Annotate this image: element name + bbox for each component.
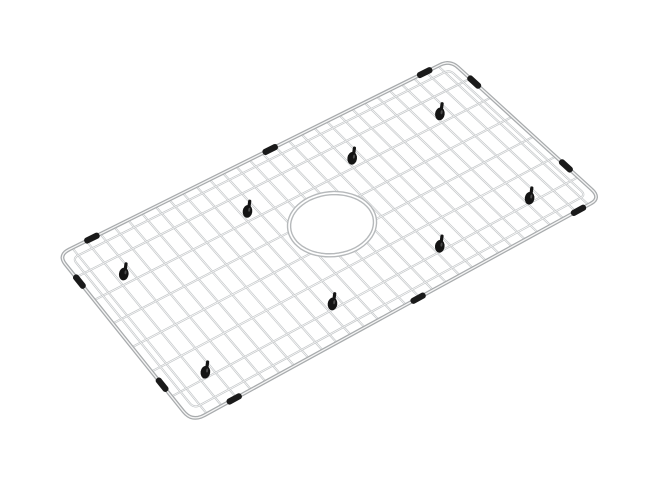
product-photo [0, 0, 658, 482]
sink-grid-illustration [0, 0, 658, 482]
